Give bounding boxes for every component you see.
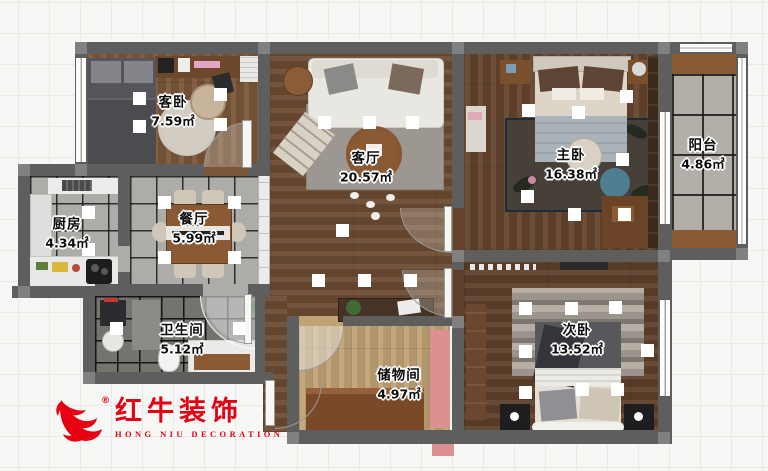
room-label-balcony: 阳台 4.86㎡: [681, 136, 724, 175]
room-label-storage-room: 储物间 4.97㎡: [377, 366, 421, 405]
floor-petal: [386, 194, 395, 201]
room-name: 餐厅: [172, 210, 215, 230]
brand-logo: ® 红牛装饰 HONG NIU DECORATION: [52, 398, 283, 446]
kitchen-dish: [72, 264, 80, 272]
room-label-guest-bedroom: 客卧 7.59㎡: [151, 93, 194, 132]
storage-pink-tab: [432, 444, 454, 456]
bull-icon-glyph: [52, 398, 106, 446]
stove-burner: [101, 268, 108, 275]
window: [738, 58, 746, 244]
master-pillow-small: [580, 88, 604, 100]
wall: [258, 42, 270, 164]
doorway-threshold: [203, 284, 250, 296]
dresser-box: [612, 206, 634, 222]
wall: [75, 42, 748, 54]
ac-unit: [560, 262, 608, 270]
washing-machine: [100, 300, 126, 326]
room-label-bathroom: 卫生间 5.12㎡: [160, 321, 204, 360]
window: [680, 44, 732, 52]
floor-petal: [371, 212, 380, 220]
brand-name-chinese: 红牛装饰: [115, 398, 283, 426]
door-leaf: [242, 120, 252, 168]
curtain-strip: [470, 264, 536, 270]
speaker-dot: [634, 412, 643, 421]
balcony-wood-strip-bottom: [672, 230, 736, 248]
window: [660, 300, 670, 396]
stove-burner: [91, 264, 99, 272]
master-pillow-small: [552, 88, 576, 100]
master-dresser: [602, 196, 648, 248]
room-area: 7.59㎡: [151, 113, 194, 132]
guest-desk-paper: [178, 58, 190, 72]
room-area: 4.86㎡: [681, 156, 724, 175]
room-name: 主卧: [545, 146, 597, 166]
wall: [452, 250, 672, 262]
room-name: 储物间: [377, 366, 421, 386]
room-area: 16.38㎡: [545, 166, 597, 185]
floor-petal: [366, 201, 375, 208]
kitchen-dish: [52, 262, 68, 272]
balcony-wood-strip-top: [672, 54, 736, 74]
bedroom-pouf: [600, 168, 630, 198]
stove: [86, 259, 112, 284]
guest-bed-pillow: [124, 61, 153, 83]
wall: [118, 176, 130, 246]
vanity-shelf-decor: [468, 112, 482, 120]
ceiling-spotlights: [0, 0, 13, 13]
guest-shelf: [240, 56, 258, 82]
room-area: 13.52㎡: [551, 341, 603, 360]
logo-text: 红牛装饰 HONG NIU DECORATION: [115, 398, 283, 439]
floor-petal: [350, 192, 359, 199]
storage-pink-wall: [430, 330, 450, 428]
wall: [452, 42, 464, 208]
room-area: 5.12㎡: [160, 341, 204, 360]
brand-name-english: HONG NIU DECORATION: [115, 429, 283, 439]
second-pillow: [579, 386, 622, 421]
second-pillow: [539, 388, 577, 421]
guest-bed-pillow: [91, 61, 121, 83]
sideboard-plant: [346, 300, 361, 315]
room-area: 5.99㎡: [172, 230, 215, 249]
speaker-dot: [510, 412, 519, 421]
nightstand-lamp: [632, 62, 646, 76]
room-name: 卫生间: [160, 321, 204, 341]
wall: [255, 296, 265, 374]
kitchen-veggies: [36, 262, 48, 270]
room-label-kitchen: 厨房 4.34㎡: [45, 215, 88, 254]
balcony-door: [660, 112, 670, 224]
doorway-threshold: [299, 316, 343, 326]
bath-sink: [102, 330, 124, 352]
room-name: 客厅: [340, 149, 392, 169]
room-name: 阳台: [681, 136, 724, 156]
nightstand-decor: [506, 64, 516, 73]
doorway-threshold: [452, 270, 464, 316]
glass-partition: [258, 176, 270, 284]
room-name: 厨房: [45, 215, 88, 235]
wall: [18, 164, 204, 176]
guest-desk-pink-item: [194, 61, 220, 68]
rug-flower-motif: [528, 176, 536, 184]
room-label-living-room: 客厅 20.57㎡: [340, 149, 392, 188]
sofa-cushion: [388, 63, 424, 94]
wall: [287, 430, 672, 444]
registered-trademark: ®: [101, 396, 110, 406]
second-wardrobe: [466, 304, 486, 420]
window: [76, 58, 86, 162]
door-leaf: [444, 206, 452, 252]
wall: [83, 290, 95, 384]
guest-desk-monitor: [158, 58, 174, 73]
room-area: 4.97㎡: [377, 386, 421, 405]
wall: [83, 372, 273, 384]
bath-cabinet: [132, 300, 160, 350]
floorplan-canvas: 客卧 7.59㎡ 客厅 20.57㎡ 主卧 16.38㎡ 阳台 4.86㎡ 厨房…: [0, 0, 768, 471]
room-label-master-bedroom: 主卧 16.38㎡: [545, 146, 597, 185]
wall: [95, 284, 203, 296]
washer-marks: [104, 298, 118, 302]
room-label-dining-room: 餐厅 5.99㎡: [172, 210, 215, 249]
door-leaf: [244, 294, 252, 344]
wall: [658, 248, 748, 260]
guest-bed-blanket: [88, 98, 156, 168]
range-hood: [62, 180, 92, 191]
doorway-threshold: [452, 208, 464, 250]
room-name: 客卧: [151, 93, 194, 113]
room-area: 4.34㎡: [45, 235, 88, 254]
doorway-threshold: [118, 246, 130, 272]
wall: [18, 164, 30, 298]
side-table: [283, 66, 313, 96]
door-leaf: [444, 268, 452, 318]
wall: [452, 316, 464, 436]
room-area: 20.57㎡: [340, 169, 392, 188]
bull-icon: ®: [52, 398, 106, 446]
master-wardrobe: [648, 56, 658, 248]
room-label-second-bedroom: 次卧 13.52㎡: [551, 321, 603, 360]
second-bed-sheet: [535, 368, 621, 386]
room-name: 次卧: [551, 321, 603, 341]
